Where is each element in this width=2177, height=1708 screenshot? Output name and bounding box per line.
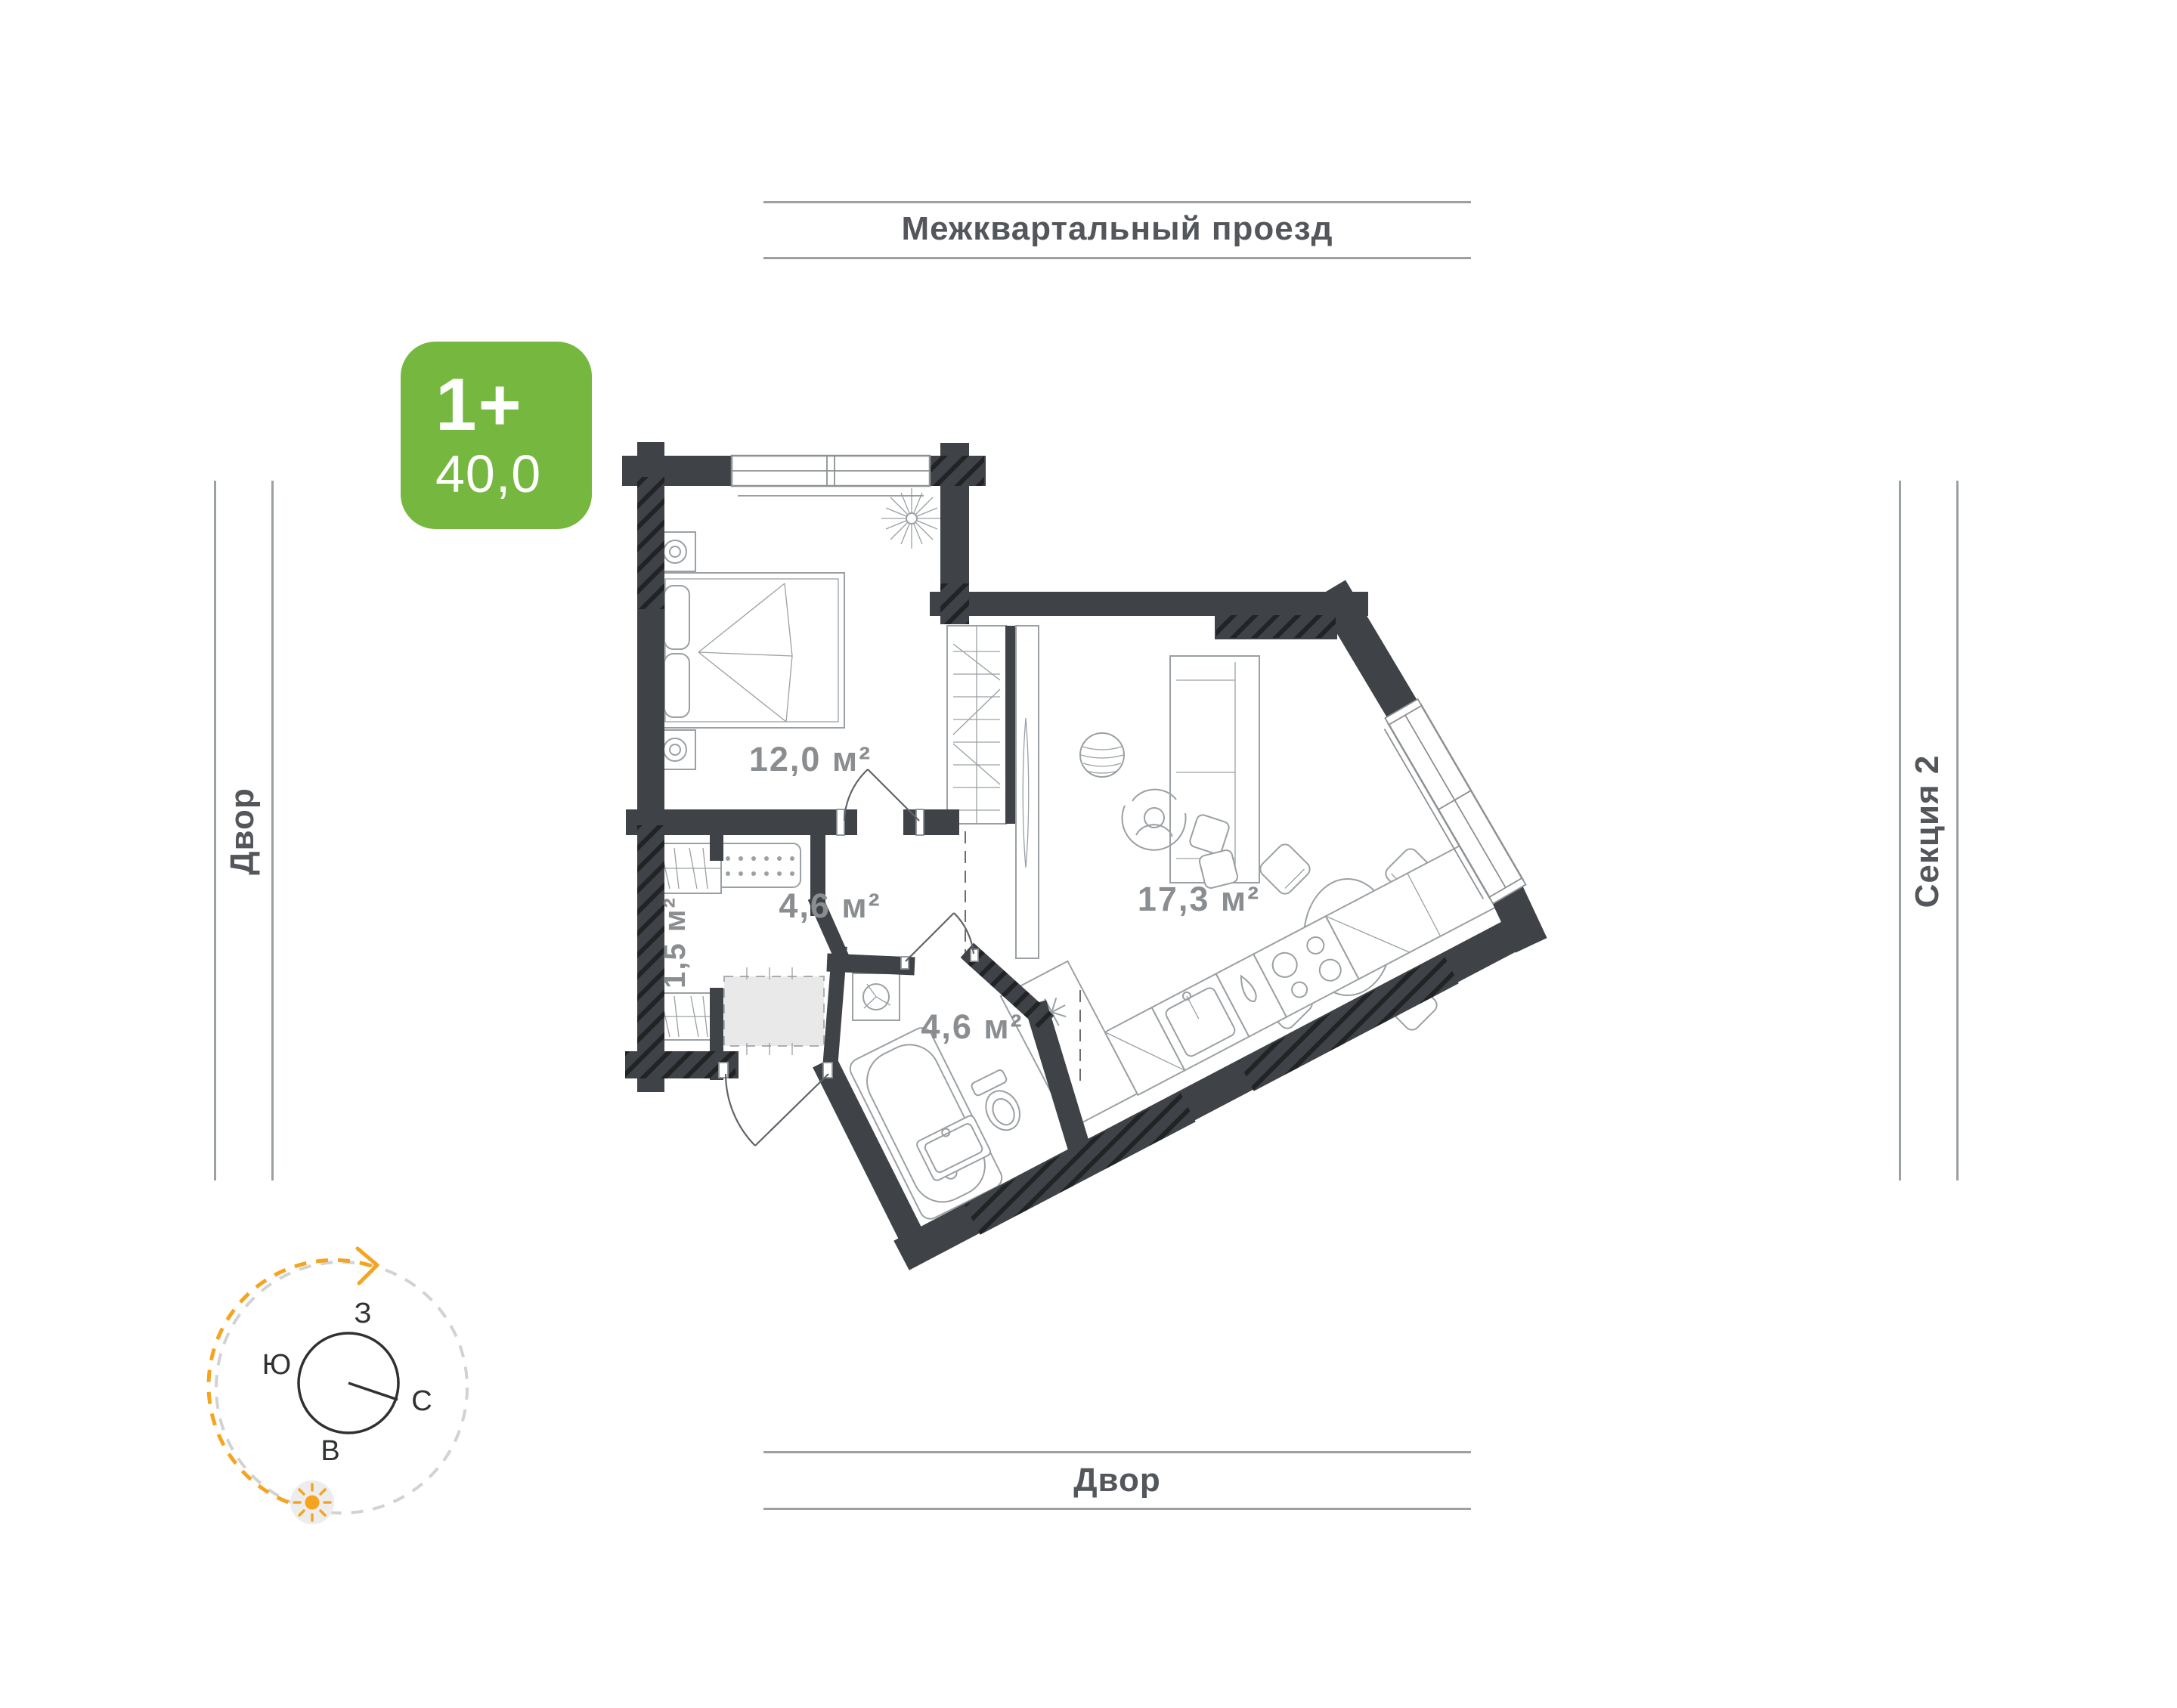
pillow bbox=[664, 586, 689, 649]
floorplan-page: Межквартальный проезд Двор Двор Секция 2… bbox=[0, 0, 2177, 1708]
bathtub bbox=[847, 1024, 1005, 1222]
sun-icon bbox=[305, 1496, 320, 1510]
hallway-area-label: 4,6 м² bbox=[779, 886, 881, 925]
chair bbox=[1257, 841, 1313, 897]
hallway-furniture bbox=[716, 843, 824, 1055]
bedroom-window bbox=[732, 456, 930, 496]
compass-south-label: Ю bbox=[262, 1349, 291, 1381]
bedroom-area-label: 12,0 м² bbox=[749, 740, 872, 778]
living-kitchen-area-label: 17,3 м² bbox=[1138, 880, 1260, 918]
compass-north-label: С bbox=[411, 1385, 432, 1417]
shoe-bench bbox=[716, 843, 801, 887]
vent-shaft bbox=[1215, 614, 1336, 639]
windows bbox=[732, 456, 1525, 907]
compass: З Ю С В bbox=[209, 1249, 467, 1524]
bathroom-area-label: 4,6 м² bbox=[921, 1007, 1023, 1046]
compass-east-label: В bbox=[321, 1435, 339, 1467]
wall-stub bbox=[1005, 626, 1016, 824]
compass-west-label: З bbox=[355, 1298, 372, 1329]
rug bbox=[724, 976, 824, 1046]
floor-plan: 12,0 м² 4,6 м² 4,6 м² 1,5 м² 17,3 м² З Ю… bbox=[0, 0, 2177, 1708]
storage-area-label: 1,5 м² bbox=[658, 896, 692, 989]
plant-icon bbox=[881, 488, 942, 549]
pillow bbox=[664, 654, 689, 717]
ottoman bbox=[1080, 733, 1124, 777]
